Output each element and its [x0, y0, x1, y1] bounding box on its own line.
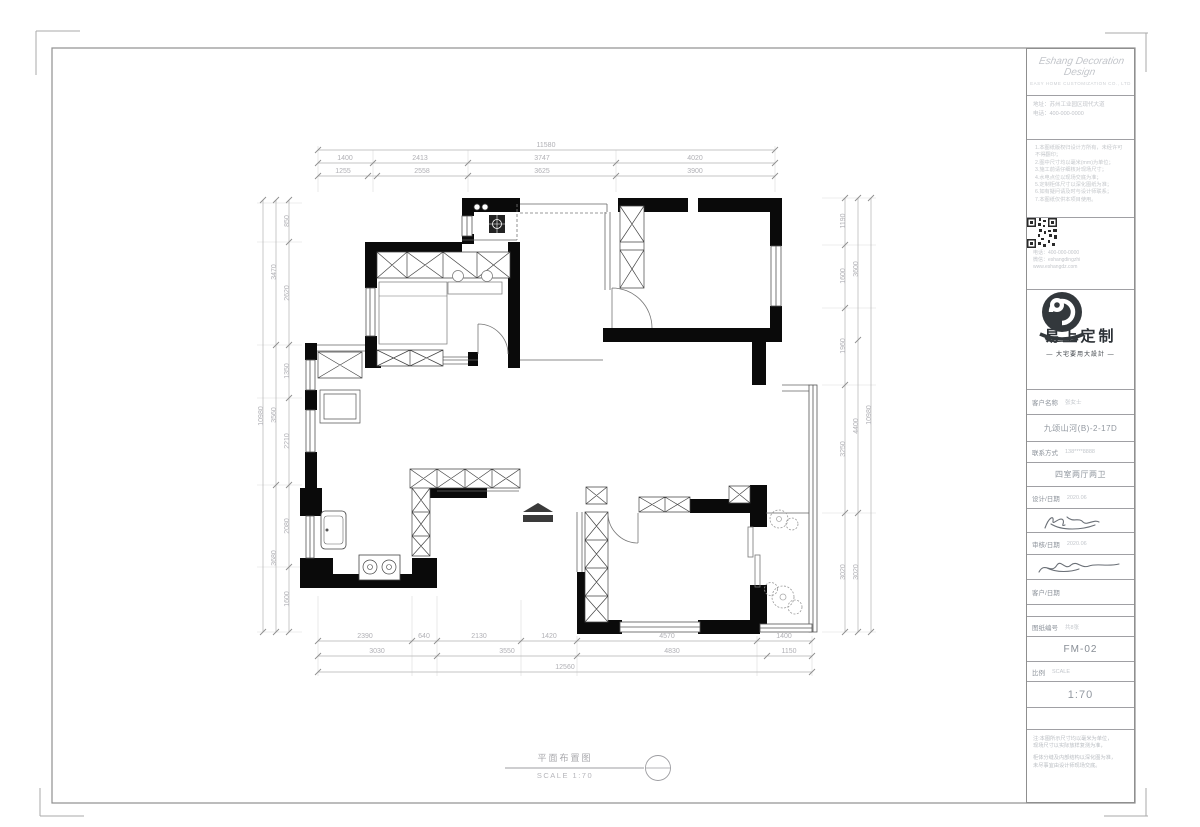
svg-text:3560: 3560: [271, 407, 278, 423]
brand-tagline: — 大宅要用大設計 —: [1046, 349, 1114, 358]
svg-text:10980: 10980: [258, 406, 265, 426]
svg-text:1600: 1600: [284, 591, 291, 607]
spacer-row: [1027, 605, 1134, 617]
company-sub-name: EASY HOME CUSTOMIZATION CO., LTD: [1027, 81, 1134, 86]
balcony-plants: [765, 510, 803, 614]
west-window-2: [306, 410, 315, 452]
svg-text:10980: 10980: [866, 405, 873, 425]
note-line: 6.如有疑问请及时与设计师联系；: [1035, 189, 1126, 196]
fridge: [320, 390, 360, 423]
svg-text:2558: 2558: [414, 168, 430, 175]
svg-text:3900: 3900: [687, 168, 703, 175]
contact-website: www.eshangdz.com: [1033, 264, 1128, 271]
svg-text:12560: 12560: [555, 664, 575, 671]
footer-notes: 注:本图所示尺寸均以毫米为单位， 现场尺寸以实际放样复测为准， 柜体分缝及内部结…: [1027, 730, 1134, 802]
svg-text:3250: 3250: [840, 441, 847, 457]
svg-text:4400: 4400: [853, 418, 860, 434]
note-line: 7.本图纸仅供本项目使用。: [1035, 197, 1126, 204]
svg-text:3747: 3747: [534, 155, 550, 162]
bedroom2-door: [478, 324, 508, 354]
corner-marks: [36, 31, 1148, 816]
svg-text:2620: 2620: [284, 285, 291, 301]
svg-text:4570: 4570: [659, 633, 675, 640]
auditor-signature: [1027, 555, 1134, 580]
brand-logo-icon: [1027, 290, 1097, 342]
contact-line: 地址：苏州工业园区现代大道: [1033, 101, 1128, 110]
svg-text:1150: 1150: [781, 648, 796, 655]
notes-paragraph: 1.本图纸版权归设计方所有，未经许可不得翻印； 2.图中尺寸均以毫米(mm)为单…: [1027, 140, 1134, 218]
company-script-name: Eshang Decoration Design: [1027, 56, 1134, 78]
scale-value: 1:70: [1027, 682, 1134, 708]
field-client-date: 客户/日期: [1027, 580, 1134, 605]
west-window-1: [306, 360, 315, 390]
contact-wechat: 微信：eshangdingzhi: [1033, 257, 1128, 264]
sheet-frame: [36, 31, 1148, 816]
designer-signature: [1027, 509, 1134, 533]
sheet-number: FM-02: [1027, 637, 1134, 662]
svg-text:850: 850: [284, 215, 291, 227]
spacer-row: [1027, 708, 1134, 730]
floor-plan-canvas: 1158014002413374740201255255836253900239…: [0, 0, 1200, 827]
drawing-title-text: 平面布置图: [537, 752, 592, 763]
svg-text:3020: 3020: [853, 564, 860, 580]
field-scale-label: 比例 SCALE: [1027, 662, 1134, 682]
svg-text:2390: 2390: [357, 633, 373, 640]
svg-text:3030: 3030: [369, 648, 385, 655]
svg-text:2080: 2080: [284, 518, 291, 534]
svg-text:2210: 2210: [284, 433, 291, 449]
svg-text:1400: 1400: [337, 155, 353, 162]
svg-text:3600: 3600: [853, 261, 860, 277]
note-line: 1.本图纸版权归设计方所有，未经许可不得翻印；: [1035, 145, 1126, 160]
balcony-slider-1: [748, 527, 753, 557]
field-auditor-date: 审核/日期 2020.06: [1027, 533, 1134, 555]
svg-text:3625: 3625: [534, 168, 550, 175]
svg-text:3470: 3470: [271, 264, 278, 280]
contact-phone: 电话：400-000-0000: [1033, 250, 1128, 257]
svg-text:1350: 1350: [284, 363, 291, 379]
svg-text:2130: 2130: [471, 633, 487, 640]
field-layout-type: 四室两厅两卫: [1027, 463, 1134, 487]
title-block: Eshang Decoration Design EASY HOME CUSTO…: [1026, 48, 1135, 803]
qr-contact-block: 扫码关注 易上定制 了解更多 电话：400-000-0000 微信：eshang…: [1027, 218, 1134, 290]
bedroom2-window: [366, 288, 375, 336]
drawing-sheet: 1158014002413374740201255255836253900239…: [0, 0, 1200, 827]
kitchen-sink: [321, 511, 346, 549]
cooktop: [359, 555, 400, 580]
footer-note-line: 现场尺寸以实际放样复测为准，: [1033, 743, 1128, 750]
company-header: Eshang Decoration Design EASY HOME CUSTO…: [1027, 49, 1134, 96]
note-line: 4.水电点位以现场交底为准；: [1035, 175, 1126, 182]
svg-text:1190: 1190: [840, 213, 847, 228]
svg-text:3680: 3680: [271, 550, 278, 566]
drawing-title-mark: 平面布置图 SCALE 1:70: [505, 752, 671, 781]
field-client-name: 客户名称 张女士: [1027, 390, 1134, 415]
balcony-slider-2: [755, 555, 760, 587]
svg-text:640: 640: [418, 633, 430, 640]
sliding-door-dashed: [517, 204, 607, 240]
field-sheet-number-label: 图纸编号 共8张: [1027, 617, 1134, 637]
field-designer-date: 设计/日期 2020.06: [1027, 487, 1134, 509]
svg-text:1255: 1255: [335, 168, 351, 175]
svg-text:11580: 11580: [537, 142, 556, 149]
bedroom3-door: [608, 513, 638, 543]
drawing-scale-text: SCALE 1:70: [537, 771, 593, 780]
gas-meter-icon: [474, 204, 480, 210]
bed: [379, 282, 447, 344]
svg-text:1960: 1960: [840, 338, 847, 354]
company-contact: 地址：苏州工业园区现代大道 电话：400-000-0000: [1027, 96, 1134, 140]
contact-line: 电话：400-000-0000: [1033, 110, 1128, 119]
master-door: [612, 288, 652, 328]
footer-note-line: 未尽事宜由设计师现场交底。: [1033, 763, 1128, 770]
svg-text:1600: 1600: [840, 268, 847, 284]
svg-text:1420: 1420: [541, 633, 557, 640]
svg-text:4020: 4020: [687, 155, 703, 162]
entry-arrow-icon: [523, 503, 553, 522]
note-line: 3.施工前请仔细核对现场尺寸；: [1035, 167, 1126, 174]
svg-text:3020: 3020: [840, 564, 847, 580]
footer-note-line: 柜体分缝及内部结构以深化图为准，: [1033, 755, 1128, 762]
field-contact: 联系方式 138****8888: [1027, 442, 1134, 463]
field-project-name: 九颂山河(B)-2-17D: [1027, 415, 1134, 442]
svg-text:1400: 1400: [776, 633, 792, 640]
svg-text:3550: 3550: [499, 648, 515, 655]
svg-text:2413: 2413: [412, 155, 428, 162]
svg-text:4830: 4830: [664, 648, 680, 655]
brand-logo-block: 易上定制 — 大宅要用大設計 —: [1027, 290, 1134, 390]
qr-code: [1027, 218, 1057, 248]
